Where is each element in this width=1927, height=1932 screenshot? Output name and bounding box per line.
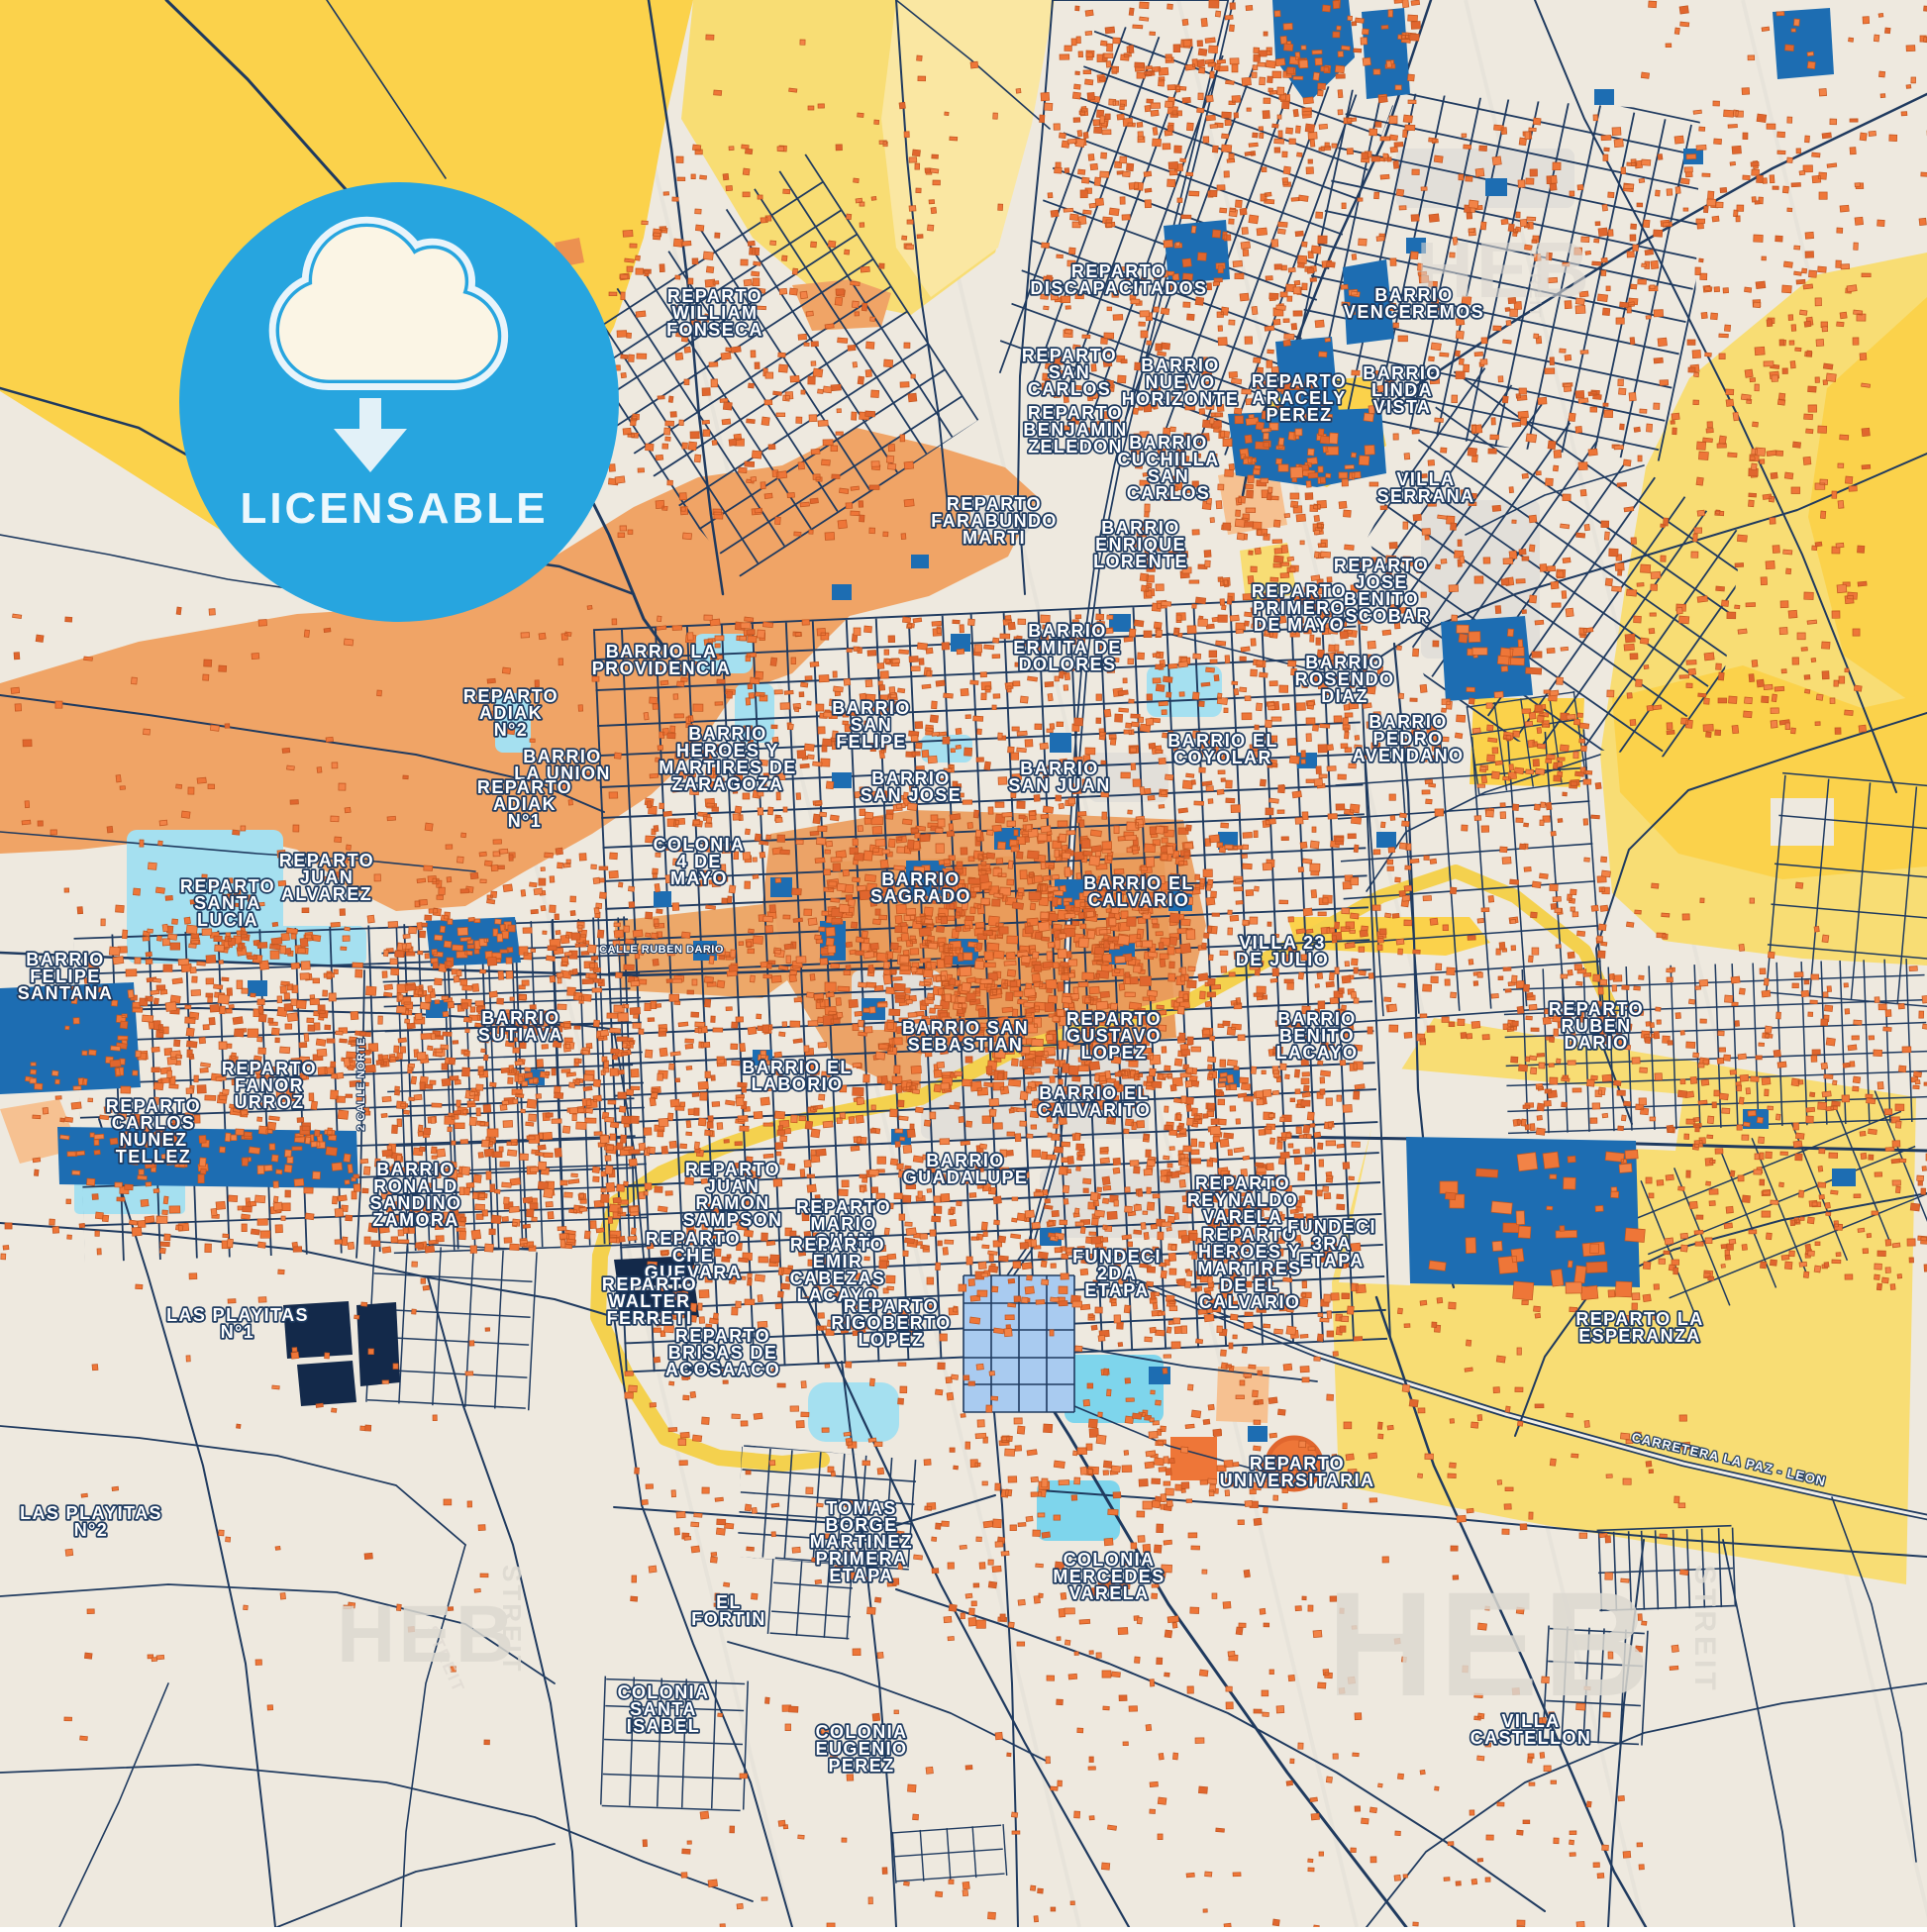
svg-text:REPARTOCARLOSNUNEZTELLEZ: REPARTOCARLOSNUNEZTELLEZ bbox=[106, 1096, 201, 1167]
svg-text:BARRIOSAGRADO: BARRIOSAGRADO bbox=[870, 869, 971, 906]
svg-text:STREIT: STREIT bbox=[1526, 248, 1545, 319]
svg-text:COLONIAEUGENIOPEREZ: COLONIAEUGENIOPEREZ bbox=[816, 1722, 908, 1776]
svg-text:REPARTOEMIRCABEZASLACAYO: REPARTOEMIRCABEZASLACAYO bbox=[790, 1235, 886, 1305]
svg-text:VILLA 23DE JULIO: VILLA 23DE JULIO bbox=[1236, 933, 1329, 969]
svg-text:REPARTOWALTERFERRETI: REPARTOWALTERFERRETI bbox=[602, 1274, 697, 1328]
svg-text:BARRIOCUCHILLASANCARLOS: BARRIOCUCHILLASANCARLOS bbox=[1117, 433, 1219, 503]
svg-text:2 CALLE NORTE: 2 CALLE NORTE bbox=[355, 1038, 367, 1131]
svg-text:BARRIOLINDAVISTA: BARRIOLINDAVISTA bbox=[1363, 363, 1441, 417]
svg-text:STREIT: STREIT bbox=[1688, 1565, 1721, 1694]
svg-text:BARRIORONALDSANDINOZAMORA: BARRIORONALDSANDINOZAMORA bbox=[370, 1160, 462, 1230]
svg-text:BARRIOSAN JOSE: BARRIOSAN JOSE bbox=[861, 768, 962, 805]
svg-text:REPARTOREYNALDOVARELA: REPARTOREYNALDOVARELA bbox=[1187, 1173, 1298, 1227]
svg-text:REPARTOFANORURROZ: REPARTOFANORURROZ bbox=[222, 1059, 317, 1112]
svg-text:BARRIO ELCOYOLAR: BARRIO ELCOYOLAR bbox=[1167, 731, 1278, 767]
svg-text:BARRIOSAN JUAN: BARRIOSAN JUAN bbox=[1008, 759, 1110, 795]
svg-text:BARRIO SANSEBASTIAN: BARRIO SANSEBASTIAN bbox=[902, 1018, 1029, 1055]
svg-text:BARRIOERMITA DEDOLORES: BARRIOERMITA DEDOLORES bbox=[1013, 621, 1122, 674]
svg-text:REPARTO LAESPERANZA: REPARTO LAESPERANZA bbox=[1575, 1309, 1703, 1346]
svg-text:HEB: HEB bbox=[1327, 1561, 1656, 1727]
svg-text:BARRIO ELCALVARITO: BARRIO ELCALVARITO bbox=[1038, 1083, 1152, 1120]
svg-text:BARRIOSUTIAVA: BARRIOSUTIAVA bbox=[478, 1008, 563, 1045]
svg-text:BARRIO ELCALVARIO: BARRIO ELCALVARIO bbox=[1083, 873, 1194, 910]
svg-text:REPARTOHEROES YMARTIRESDE ELCA: REPARTOHEROES YMARTIRESDE ELCALVARIO bbox=[1197, 1225, 1301, 1312]
svg-text:REPARTOJUANRAMONSAMPSON: REPARTOJUANRAMONSAMPSON bbox=[683, 1160, 783, 1230]
svg-text:BARRIOBENITOLACAYO: BARRIOBENITOLACAYO bbox=[1276, 1009, 1359, 1063]
svg-text:LICENSABLE: LICENSABLE bbox=[240, 484, 548, 533]
svg-text:BARRIOFELIPESANTANA: BARRIOFELIPESANTANA bbox=[18, 950, 113, 1003]
svg-text:BARRIO LAPROVIDENCIA: BARRIO LAPROVIDENCIA bbox=[592, 642, 731, 678]
svg-text:REPARTOBRISAS DEACOSAACO: REPARTOBRISAS DEACOSAACO bbox=[665, 1326, 780, 1379]
svg-text:STREIT: STREIT bbox=[497, 1565, 527, 1674]
svg-text:CALLE RUBEN DARIO: CALLE RUBEN DARIO bbox=[599, 944, 724, 956]
svg-text:COLONIASANTAISABEL: COLONIASANTAISABEL bbox=[618, 1682, 710, 1736]
svg-text:COLONIAMERCEDESVARELA: COLONIAMERCEDESVARELA bbox=[1053, 1550, 1165, 1603]
svg-text:REPARTOBENJAMINZELEDON: REPARTOBENJAMINZELEDON bbox=[1023, 403, 1127, 457]
svg-text:REPARTOPRIMERODE MAYO: REPARTOPRIMERODE MAYO bbox=[1252, 581, 1347, 635]
svg-text:BARRIOENRIQUELORENTE: BARRIOENRIQUELORENTE bbox=[1093, 518, 1188, 571]
svg-text:REPARTOWILLIAMFONSECA: REPARTOWILLIAMFONSECA bbox=[666, 286, 763, 340]
svg-text:BARRIO ELLABORIO: BARRIO ELLABORIO bbox=[742, 1058, 853, 1094]
